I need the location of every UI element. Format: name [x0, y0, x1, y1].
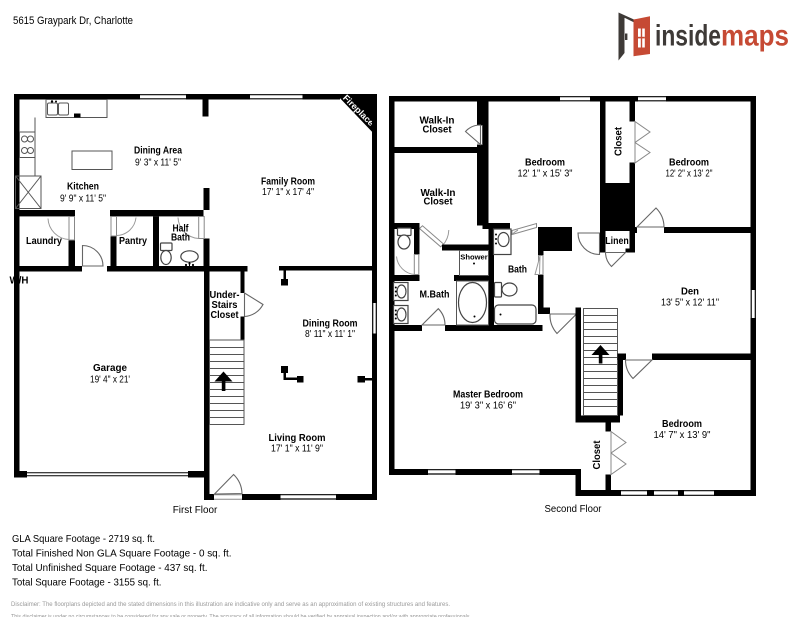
svg-text:Bath: Bath [508, 264, 527, 276]
svg-text:Shower: Shower [460, 253, 488, 262]
svg-text:Dining Area: Dining Area [134, 145, 182, 157]
svg-text:Closet: Closet [424, 196, 453, 208]
svg-text:19' 3" x 16' 6": 19' 3" x 16' 6" [460, 400, 516, 412]
svg-text:Second Floor: Second Floor [545, 504, 603, 515]
svg-text:12' 2" x 13' 2": 12' 2" x 13' 2" [666, 168, 713, 180]
svg-text:First Floor: First Floor [173, 505, 218, 516]
svg-text:5615 Graypark Dr, Charlotte: 5615 Graypark Dr, Charlotte [13, 15, 133, 27]
svg-text:M.Bath: M.Bath [420, 289, 450, 301]
svg-text:Closet: Closet [591, 440, 603, 469]
svg-text:Total Square Footage - 3155 sq: Total Square Footage - 3155 sq. ft. [12, 577, 162, 589]
svg-text:Linen: Linen [605, 235, 629, 247]
svg-text:19' 4" x 21': 19' 4" x 21' [90, 374, 130, 386]
svg-text:Total Unfinished Square Footag: Total Unfinished Square Footage - 437 sq… [12, 562, 208, 574]
svg-text:17' 1" x 11' 9": 17' 1" x 11' 9" [271, 443, 323, 455]
svg-text:9' 9" x 11' 5": 9' 9" x 11' 5" [60, 193, 106, 205]
svg-text:Disclaimer: The floorplans dep: Disclaimer: The floorplans depicted and … [11, 601, 450, 608]
svg-text:14' 7" x 13' 9": 14' 7" x 13' 9" [654, 429, 711, 441]
svg-text:maps: maps [721, 19, 789, 52]
svg-text:Laundry: Laundry [26, 235, 62, 247]
svg-text:Pantry: Pantry [119, 235, 147, 247]
svg-text:inside: inside [655, 19, 721, 52]
svg-text:12' 1" x 15' 3": 12' 1" x 15' 3" [518, 168, 573, 180]
svg-text:9' 3" x 11' 5": 9' 3" x 11' 5" [135, 157, 181, 169]
svg-text:Closet: Closet [423, 124, 452, 136]
svg-text:13' 5" x 12' 11": 13' 5" x 12' 11" [661, 297, 719, 309]
svg-text:Closet: Closet [613, 127, 625, 156]
svg-text:Kitchen: Kitchen [67, 181, 99, 193]
svg-text:17' 1" x 17' 4": 17' 1" x 17' 4" [262, 186, 314, 198]
svg-text:This disclaimer is under no ci: This disclaimer is under no circumstance… [11, 614, 471, 617]
svg-text:Total Finished Non GLA Square: Total Finished Non GLA Square Footage - … [12, 548, 232, 560]
svg-text:Garage: Garage [93, 362, 127, 374]
svg-text:8' 11" x 11' 1": 8' 11" x 11' 1" [305, 328, 355, 340]
svg-text:Closet: Closet [211, 309, 239, 321]
svg-text:W/H: W/H [10, 275, 29, 287]
svg-text:GLA Square Footage - 2719 sq.: GLA Square Footage - 2719 sq. ft. [12, 533, 155, 545]
svg-text:Bath: Bath [171, 232, 190, 244]
